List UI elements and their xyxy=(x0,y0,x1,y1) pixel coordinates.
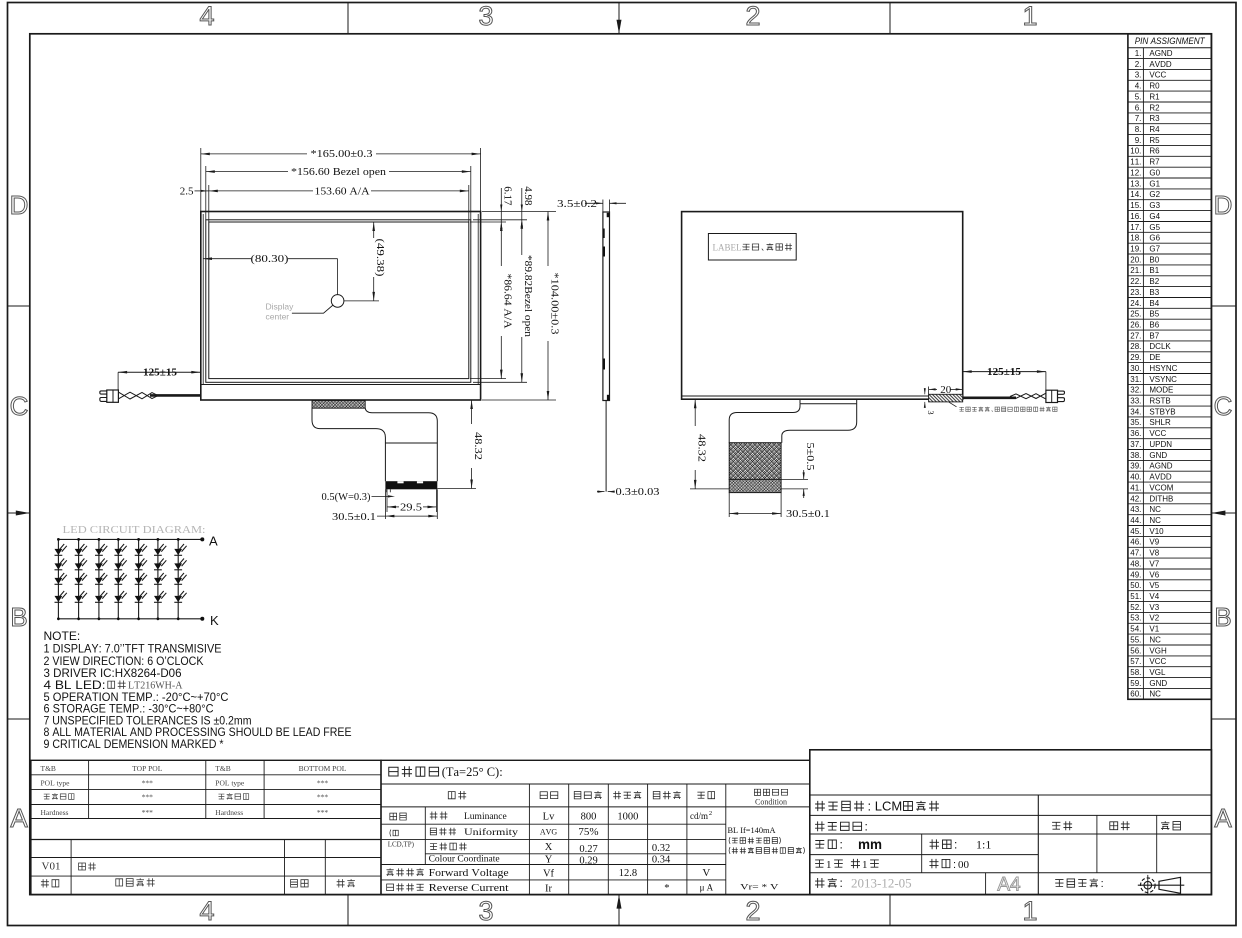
svg-text:32.: 32. xyxy=(1130,386,1141,395)
svg-text:DE: DE xyxy=(1149,353,1160,362)
svg-text:4.: 4. xyxy=(1135,82,1142,91)
svg-text:27.: 27. xyxy=(1130,331,1141,340)
svg-text::: : xyxy=(954,838,957,852)
svg-text:G0: G0 xyxy=(1149,169,1160,178)
svg-text:***: *** xyxy=(142,779,154,788)
svg-text:SHLR: SHLR xyxy=(1149,418,1171,427)
svg-text:VCC: VCC xyxy=(1149,657,1166,666)
svg-text:A4: A4 xyxy=(997,875,1021,896)
svg-text:19.: 19. xyxy=(1130,245,1141,254)
svg-text:VGL: VGL xyxy=(1149,668,1166,677)
svg-text:*156.60 Bezel open: *156.60 Bezel open xyxy=(291,166,387,178)
svg-text:BOTTOM POL: BOTTOM POL xyxy=(299,764,347,773)
svg-text:STBYB: STBYB xyxy=(1149,407,1175,416)
svg-text:40.: 40. xyxy=(1130,473,1141,482)
svg-text::: : xyxy=(953,859,956,871)
svg-text:R7: R7 xyxy=(1149,158,1160,167)
svg-text:39.: 39. xyxy=(1130,462,1141,471)
svg-text:V4: V4 xyxy=(1149,592,1159,601)
svg-text:6.17: 6.17 xyxy=(501,186,513,206)
svg-text:14.: 14. xyxy=(1130,190,1141,199)
svg-text:3: 3 xyxy=(478,896,493,926)
svg-text:TOP POL: TOP POL xyxy=(132,764,163,773)
svg-text:24.: 24. xyxy=(1130,299,1141,308)
svg-text:G1: G1 xyxy=(1149,179,1160,188)
svg-text:NC: NC xyxy=(1149,505,1161,514)
svg-text:cd/m: cd/m xyxy=(690,811,708,821)
svg-text:***: *** xyxy=(317,808,329,817)
svg-text:V3: V3 xyxy=(1149,603,1159,612)
svg-text:18.: 18. xyxy=(1130,234,1141,243)
svg-text:1: 1 xyxy=(862,859,868,871)
svg-text::: : xyxy=(865,820,868,834)
svg-text:G6: G6 xyxy=(1149,234,1160,243)
svg-text:AGND: AGND xyxy=(1149,49,1172,58)
svg-text:*: * xyxy=(664,883,669,894)
svg-text:X: X xyxy=(545,842,553,853)
svg-text:R5: R5 xyxy=(1149,136,1160,145)
svg-text:30.5±0.1: 30.5±0.1 xyxy=(786,508,830,520)
svg-text:R3: R3 xyxy=(1149,114,1160,123)
svg-text:UPDN: UPDN xyxy=(1149,440,1172,449)
svg-text:3.5±0.2: 3.5±0.2 xyxy=(557,198,597,210)
svg-text:3: 3 xyxy=(926,410,936,414)
svg-text:G5: G5 xyxy=(1149,223,1160,232)
svg-text:2: 2 xyxy=(709,810,712,817)
svg-text:V10: V10 xyxy=(1149,527,1164,536)
svg-text:(49.38): (49.38) xyxy=(374,239,386,277)
svg-text:*165.00±0.3: *165.00±0.3 xyxy=(311,148,374,160)
svg-text:*104.00±0.3: *104.00±0.3 xyxy=(548,273,560,336)
svg-text:4: 4 xyxy=(199,1,214,31)
svg-text:V7: V7 xyxy=(1149,559,1159,568)
svg-text:47.: 47. xyxy=(1130,549,1141,558)
svg-text:PIN ASSIGNMENT: PIN ASSIGNMENT xyxy=(1135,36,1206,47)
svg-text:DCLK: DCLK xyxy=(1149,342,1171,351)
svg-text:44.: 44. xyxy=(1130,516,1141,525)
svg-text:20: 20 xyxy=(940,384,952,396)
svg-text:21.: 21. xyxy=(1130,266,1141,275)
svg-text:LT216WH-A: LT216WH-A xyxy=(128,681,183,692)
svg-text:56.: 56. xyxy=(1130,646,1141,655)
svg-text:0.3±0.03: 0.3±0.03 xyxy=(616,486,661,498)
svg-text:B7: B7 xyxy=(1149,331,1159,340)
svg-text:AVDD: AVDD xyxy=(1149,60,1171,69)
svg-text:33.: 33. xyxy=(1130,397,1141,406)
svg-text:R6: R6 xyxy=(1149,147,1160,156)
svg-text:1: 1 xyxy=(1022,896,1037,926)
svg-text:Vf: Vf xyxy=(543,869,555,880)
svg-text:G3: G3 xyxy=(1149,201,1160,210)
svg-text:35.: 35. xyxy=(1130,418,1141,427)
svg-text:36.: 36. xyxy=(1130,429,1141,438)
svg-text:1: 1 xyxy=(826,859,832,871)
svg-text:Display: Display xyxy=(266,302,295,312)
svg-text:50.: 50. xyxy=(1130,581,1141,590)
svg-text:mm: mm xyxy=(858,837,882,852)
svg-text:K: K xyxy=(210,613,219,628)
svg-text:1.: 1. xyxy=(1135,49,1142,58)
svg-text:AVG: AVG xyxy=(540,828,558,837)
svg-text:V9: V9 xyxy=(1149,538,1159,547)
svg-text:54.: 54. xyxy=(1130,625,1141,634)
svg-text:*89.82Bezel open: *89.82Bezel open xyxy=(522,255,534,338)
svg-text:Lv: Lv xyxy=(543,812,555,823)
svg-text:G2: G2 xyxy=(1149,190,1160,199)
svg-text:2.: 2. xyxy=(1135,60,1142,69)
svg-text:Luminance: Luminance xyxy=(464,812,507,822)
svg-text:125±15: 125±15 xyxy=(143,367,177,379)
svg-text:***: *** xyxy=(142,793,154,802)
svg-text:1: 1 xyxy=(1022,1,1037,31)
svg-text:V: V xyxy=(702,867,710,879)
svg-text:1:1: 1:1 xyxy=(976,838,991,852)
svg-text:11.: 11. xyxy=(1130,158,1141,167)
svg-text:(80.30): (80.30) xyxy=(251,253,289,265)
svg-text:R2: R2 xyxy=(1149,103,1160,112)
svg-text:Condition: Condition xyxy=(755,798,787,807)
svg-text:3.: 3. xyxy=(1135,71,1142,80)
svg-text:Colour Coordinate: Colour Coordinate xyxy=(429,855,500,865)
svg-text:*86.64 A/A: *86.64 A/A xyxy=(502,274,514,329)
svg-text:0.32: 0.32 xyxy=(652,843,670,854)
svg-text:4: 4 xyxy=(199,896,214,926)
svg-text:5±0.5: 5±0.5 xyxy=(804,443,816,472)
svg-text:29.: 29. xyxy=(1130,353,1141,362)
svg-text:5.: 5. xyxy=(1135,92,1142,101)
svg-text:POL type: POL type xyxy=(41,779,71,788)
svg-text:53.: 53. xyxy=(1130,614,1141,623)
svg-text:NC: NC xyxy=(1149,690,1161,699)
svg-text:LABEL:: LABEL: xyxy=(713,243,745,253)
svg-text:POL type: POL type xyxy=(215,779,245,788)
svg-text:D: D xyxy=(1214,190,1233,220)
svg-text:52.: 52. xyxy=(1130,603,1141,612)
svg-text::: : xyxy=(840,838,843,852)
svg-text:25.: 25. xyxy=(1130,310,1141,319)
svg-text:***: *** xyxy=(317,793,329,802)
svg-text:***: *** xyxy=(142,808,154,817)
svg-text:RSTB: RSTB xyxy=(1149,397,1170,406)
svg-text:30.: 30. xyxy=(1130,364,1141,373)
svg-text:NC: NC xyxy=(1149,516,1161,525)
svg-text:B2: B2 xyxy=(1149,277,1159,286)
svg-text:0.29: 0.29 xyxy=(579,856,597,867)
svg-text:0.5(W=0.3): 0.5(W=0.3) xyxy=(322,491,371,503)
svg-text:48.32: 48.32 xyxy=(472,432,484,460)
svg-text:16.: 16. xyxy=(1130,212,1141,221)
svg-text:13.: 13. xyxy=(1130,179,1141,188)
svg-text:60.: 60. xyxy=(1130,690,1141,699)
svg-text:Hardness: Hardness xyxy=(41,808,69,817)
svg-text:48.: 48. xyxy=(1130,559,1141,568)
svg-text:AGND: AGND xyxy=(1149,462,1172,471)
svg-text:8.: 8. xyxy=(1135,125,1142,134)
svg-text:2013-12-05: 2013-12-05 xyxy=(851,876,912,891)
svg-text:34.: 34. xyxy=(1130,407,1141,416)
svg-text:center: center xyxy=(266,312,290,322)
svg-text:GND: GND xyxy=(1149,679,1167,688)
svg-text:58.: 58. xyxy=(1130,668,1141,677)
svg-text:B3: B3 xyxy=(1149,288,1159,297)
svg-text:R0: R0 xyxy=(1149,82,1160,91)
svg-text:00: 00 xyxy=(958,859,970,871)
svg-text:4.98: 4.98 xyxy=(522,186,534,206)
svg-text:VCC: VCC xyxy=(1149,429,1166,438)
svg-text:48.32: 48.32 xyxy=(696,434,708,462)
svg-text:NC: NC xyxy=(1149,635,1161,644)
svg-text:26.: 26. xyxy=(1130,321,1141,330)
svg-text:17.: 17. xyxy=(1130,223,1141,232)
svg-text:VCOM: VCOM xyxy=(1149,483,1173,492)
svg-text:A: A xyxy=(1214,803,1232,833)
svg-text:G4: G4 xyxy=(1149,212,1160,221)
svg-text:R1: R1 xyxy=(1149,92,1160,101)
svg-text:800: 800 xyxy=(581,812,597,823)
svg-text:12.: 12. xyxy=(1130,169,1141,178)
svg-text:HSYNC: HSYNC xyxy=(1149,364,1177,373)
svg-text:B: B xyxy=(1214,602,1231,632)
svg-text:VGH: VGH xyxy=(1149,646,1167,655)
svg-text:Uniformity: Uniformity xyxy=(464,827,519,837)
svg-text:AVDD: AVDD xyxy=(1149,473,1171,482)
svg-text:20.: 20. xyxy=(1130,255,1141,264)
svg-text:V5: V5 xyxy=(1149,581,1159,590)
svg-text:23.: 23. xyxy=(1130,288,1141,297)
svg-text:57.: 57. xyxy=(1130,657,1141,666)
svg-text:37.: 37. xyxy=(1130,440,1141,449)
svg-text:μ A: μ A xyxy=(700,883,714,893)
svg-text:Forward Voltage: Forward Voltage xyxy=(429,867,509,879)
svg-text:B0: B0 xyxy=(1149,255,1159,264)
svg-text:Hardness: Hardness xyxy=(215,808,243,817)
svg-text:VSYNC: VSYNC xyxy=(1149,375,1177,384)
svg-text:V01: V01 xyxy=(42,861,61,873)
svg-text:Reverse Current: Reverse Current xyxy=(429,882,509,894)
svg-text::: : xyxy=(840,876,843,890)
svg-text:VCC: VCC xyxy=(1149,71,1166,80)
svg-text:59.: 59. xyxy=(1130,679,1141,688)
svg-text:T&B: T&B xyxy=(41,764,56,773)
svg-text:MODE: MODE xyxy=(1149,386,1173,395)
svg-text:B5: B5 xyxy=(1149,310,1159,319)
svg-text:D: D xyxy=(10,190,29,220)
svg-text:C: C xyxy=(10,391,29,421)
svg-text:B1: B1 xyxy=(1149,266,1159,275)
svg-text:153.60 A/A: 153.60 A/A xyxy=(315,185,370,197)
svg-text:G7: G7 xyxy=(1149,245,1160,254)
svg-text:38.: 38. xyxy=(1130,451,1141,460)
svg-text:42.: 42. xyxy=(1130,494,1141,503)
svg-text:10.: 10. xyxy=(1130,147,1141,156)
svg-text:V2: V2 xyxy=(1149,614,1159,623)
svg-text:45.: 45. xyxy=(1130,527,1141,536)
svg-text:V6: V6 xyxy=(1149,570,1159,579)
svg-text:V8: V8 xyxy=(1149,549,1159,558)
svg-text:T&B: T&B xyxy=(215,764,230,773)
svg-text:B: B xyxy=(10,602,27,632)
svg-text:1000: 1000 xyxy=(617,812,638,823)
svg-text:46.: 46. xyxy=(1130,538,1141,547)
svg-text:Ir: Ir xyxy=(545,884,552,895)
svg-text:22.: 22. xyxy=(1130,277,1141,286)
svg-text:2: 2 xyxy=(745,1,760,31)
svg-text:28.: 28. xyxy=(1130,342,1141,351)
svg-text:0.27: 0.27 xyxy=(579,844,597,855)
svg-text:0.34: 0.34 xyxy=(652,855,671,866)
svg-text:: LCM: : LCM xyxy=(868,799,903,814)
svg-text:GND: GND xyxy=(1149,451,1167,460)
svg-text:Y: Y xyxy=(545,855,553,866)
svg-text:125±15: 125±15 xyxy=(987,366,1021,378)
svg-text:DITHB: DITHB xyxy=(1149,494,1173,503)
svg-text:4 BL LED:: 4 BL LED: xyxy=(44,678,106,692)
svg-text:R4: R4 xyxy=(1149,125,1160,134)
svg-text:A: A xyxy=(209,534,218,549)
svg-text:Vr= * V: Vr= * V xyxy=(740,882,779,892)
svg-text:43.: 43. xyxy=(1130,505,1141,514)
svg-text:41.: 41. xyxy=(1130,483,1141,492)
svg-text:2: 2 xyxy=(745,896,760,926)
svg-text:29.5: 29.5 xyxy=(400,501,423,513)
svg-text:6.: 6. xyxy=(1135,103,1142,112)
svg-text:***: *** xyxy=(317,779,329,788)
svg-text:B4: B4 xyxy=(1149,299,1159,308)
svg-text:9.: 9. xyxy=(1135,136,1142,145)
svg-text:49.: 49. xyxy=(1130,570,1141,579)
svg-text:3: 3 xyxy=(478,1,493,31)
svg-text:15.: 15. xyxy=(1130,201,1141,210)
svg-text:9 CRITICAL DEMENSION MARKED *: 9 CRITICAL DEMENSION MARKED * xyxy=(44,737,224,751)
svg-text:LCD,TP): LCD,TP) xyxy=(388,841,415,849)
svg-text:LED CIRCUIT DIAGRAM:: LED CIRCUIT DIAGRAM: xyxy=(63,524,206,536)
svg-text:B6: B6 xyxy=(1149,321,1159,330)
svg-text:7.: 7. xyxy=(1135,114,1142,123)
svg-text:(Ta=25° C):: (Ta=25° C): xyxy=(442,765,503,779)
svg-text:A: A xyxy=(10,803,28,833)
svg-text:75%: 75% xyxy=(578,826,598,838)
svg-text:12.8: 12.8 xyxy=(619,868,637,879)
svg-text:2.5: 2.5 xyxy=(180,185,194,197)
svg-text:51.: 51. xyxy=(1130,592,1141,601)
svg-text:C: C xyxy=(1214,391,1233,421)
svg-text:V1: V1 xyxy=(1149,625,1159,634)
svg-text::: : xyxy=(1101,878,1104,890)
svg-text:31.: 31. xyxy=(1130,375,1141,384)
svg-text:30.5±0.1: 30.5±0.1 xyxy=(332,511,376,523)
svg-text:55.: 55. xyxy=(1130,635,1141,644)
svg-text:BL If=140mA: BL If=140mA xyxy=(728,826,776,835)
